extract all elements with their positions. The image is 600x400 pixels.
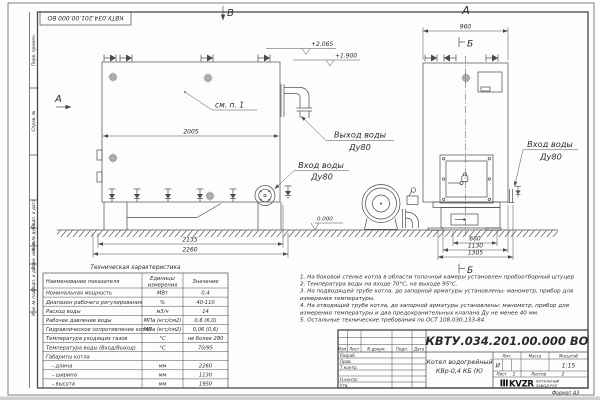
table-rows: Номинальная мощностьМВт0,4 Диапазон рабо…	[45, 291, 224, 388]
svg-text:14: 14	[202, 309, 209, 315]
valve-icon	[165, 189, 172, 202]
sheets-value: 2	[562, 372, 565, 378]
svg-text:40-110: 40-110	[196, 300, 215, 306]
top-stamp-number: КВТУ.034.201.00.000 ВО	[47, 14, 123, 21]
margin-label: Инв. № подл.	[31, 286, 37, 316]
kvzr-logo-icon	[501, 380, 503, 387]
svg-text:0,06 (0,6): 0,06 (0,6)	[193, 327, 219, 333]
sheet-label: Лист	[496, 372, 508, 377]
svg-text:Номинальная мощность: Номинальная мощность	[46, 291, 112, 297]
svg-text:°С: °С	[159, 345, 166, 351]
doc-number: КВТУ.034.201.00.000 ВО	[426, 334, 589, 348]
col-header: Единицы	[150, 276, 175, 282]
logo-text: KVZR	[509, 379, 534, 389]
svg-text:МВт: МВт	[157, 291, 169, 297]
svg-text:70/95: 70/95	[198, 345, 214, 351]
margin-strip: Перв. примен. Справ. № Подп. и дата Инв.…	[30, 12, 38, 388]
furnace-door	[440, 155, 493, 203]
draft-fan	[362, 185, 419, 230]
svg-text:Диапазон рабочего регулировани: Диапазон рабочего регулирования	[45, 300, 142, 306]
note-line: 4. На отводящей трубе котла, до запорной…	[300, 303, 570, 309]
valve-icon	[120, 55, 132, 62]
see-note-label: см. п. 1	[215, 101, 244, 110]
valve-icon	[258, 55, 270, 62]
kvzr-logo-icon	[503, 380, 505, 387]
dim-side-2: 1130	[468, 243, 483, 250]
svg-text:мм: мм	[159, 373, 167, 379]
view-a-arrow-label: А	[54, 94, 62, 105]
row-tkontr: Т.контр.	[340, 365, 358, 370]
valve-icon	[134, 189, 141, 202]
valve-icon	[425, 55, 437, 62]
valve-icon	[444, 55, 456, 62]
note-line: 5. Остальные технические требования по О…	[300, 318, 486, 324]
col-podp: Подп.	[396, 346, 408, 351]
boiler-assembly-drawing: Перв. примен. Справ. № Подп. и дата Инв.…	[0, 0, 600, 400]
inlet-label-side: Вход воды	[527, 139, 573, 149]
drawing-sheet: Перв. примен. Справ. № Подп. и дата Инв.…	[0, 0, 600, 400]
svg-text:Температура воды (Вход/Выход): Температура воды (Вход/Выход)	[46, 345, 136, 351]
svg-text:- высота: - высота	[52, 382, 75, 388]
sheet-value: 1	[513, 372, 516, 378]
svg-text:%: %	[160, 300, 165, 306]
svg-text:мм: мм	[159, 382, 167, 388]
fan-duct	[403, 188, 419, 228]
drain-valve-icon	[285, 186, 292, 199]
pipe-labels: Выход воды Ду80 Вход воды Ду80 Вход воды…	[275, 116, 579, 189]
inlet-dn-label-side: Ду80	[539, 152, 562, 162]
svg-text:МПа (кгс/см2): МПа (кгс/см2)	[144, 327, 182, 333]
note-line: измерения температуры и два предохраните…	[300, 310, 539, 316]
col-list: Лист	[348, 346, 360, 351]
scale-label: Масштаб	[559, 353, 579, 358]
valve-icon	[201, 55, 213, 62]
svg-text:Расход воды: Расход воды	[46, 309, 81, 315]
col-header: измерения	[148, 283, 178, 289]
svg-text:- ширина: - ширина	[52, 373, 77, 379]
col-izm: Изм.	[338, 346, 347, 351]
technical-notes: 1. На боковой стенке котла в области топ…	[300, 274, 575, 323]
kvzr-logo: KVZR КОТЕЛЬНЫЙ ЗАВОД РЭП	[501, 379, 560, 390]
dim-side-top: 960	[460, 24, 472, 31]
svg-text:2260: 2260	[199, 363, 213, 369]
tech-table: Техническая характеристика Наименование …	[43, 265, 228, 388]
svg-text:МПа (кгс/см2): МПа (кгс/см2)	[144, 318, 182, 324]
elevation-zero: 0.000	[317, 217, 333, 223]
valve-icon	[230, 189, 237, 202]
lit-value: И	[495, 363, 500, 370]
scan-shadow	[0, 397, 600, 400]
lit-label: Лит.	[501, 353, 511, 358]
col-header: Наименование показателя	[46, 279, 119, 285]
svg-text:м3/ч: м3/ч	[156, 309, 168, 315]
margin-label: Справ. №	[31, 110, 37, 131]
svg-text:Гидравлическое сопротивление к: Гидравлическое сопротивление котла	[46, 327, 152, 333]
svg-text:1950: 1950	[199, 382, 213, 388]
col-header: Значение	[192, 279, 218, 285]
sheets-label: Листов	[530, 372, 547, 377]
note-line: измерения температуры.	[300, 296, 375, 302]
section-b-top-label: Б	[467, 40, 473, 50]
scale-value: 1:15	[562, 363, 576, 370]
format-label: Формат А3	[552, 391, 579, 397]
note-line: 3. На подводящей трубе котла, до запорно…	[300, 289, 574, 295]
dim-front-body: 2005	[183, 129, 198, 136]
company-line2: ЗАВОД РЭП	[536, 384, 558, 388]
svg-text:0,4: 0,4	[201, 291, 209, 297]
door-latch-icon	[462, 176, 468, 182]
inlet-label-front: Вход воды	[298, 160, 344, 170]
tech-table-title: Техническая характеристика	[90, 265, 181, 271]
kvzr-logo-icon	[506, 380, 508, 387]
outlet-dn-label: Ду80	[348, 142, 371, 152]
row-prov: Пров.	[340, 359, 352, 364]
svg-text:мм: мм	[159, 363, 167, 369]
svg-text:1130: 1130	[199, 373, 213, 379]
title-block: КВТУ.034.201.00.000 ВО Изм. Лист N докум…	[338, 330, 589, 389]
svg-text:- длина: - длина	[52, 363, 72, 369]
outlet-label: Выход воды	[334, 130, 387, 140]
row-nkontr: Н.контр.	[340, 377, 358, 382]
elevation-top: +2.065	[311, 41, 333, 48]
margin-label: Перв. примен.	[31, 34, 37, 66]
foundation	[104, 202, 281, 230]
inlet-dn-label-front: Ду80	[310, 172, 333, 182]
mass-label: Масса	[529, 353, 542, 358]
svg-text:Температура уходящих газов: Температура уходящих газов	[46, 336, 127, 342]
product-name-line1: Котел водогрейный	[426, 359, 492, 366]
svg-text:0,6 (6,0): 0,6 (6,0)	[194, 318, 216, 324]
valve-icon	[486, 55, 498, 62]
dim-front-total: 2260	[182, 247, 197, 254]
note-line: 1. На боковой стенке котла в области топ…	[300, 274, 575, 280]
svg-text:Рабочее давление воды: Рабочее давление воды	[46, 318, 112, 324]
dim-front-base: 2135	[182, 237, 197, 244]
row-utv: Утв.	[340, 383, 349, 388]
valve-icon	[197, 189, 204, 202]
valve-icon	[109, 189, 116, 202]
note-line: 2. Температура воды на входе 70°С, на вы…	[300, 282, 458, 288]
svg-text:Габариты котла: Габариты котла	[46, 354, 90, 360]
dim-side-3: 1305	[468, 250, 483, 257]
col-data: Дата	[413, 346, 425, 351]
view-b-label: В	[227, 8, 234, 19]
elevation-mid: +1.900	[335, 53, 357, 60]
view-a-title: А	[461, 4, 470, 17]
outlet-pipe	[281, 84, 312, 118]
svg-text:°С: °С	[159, 336, 166, 342]
inlet-nozzle-side	[508, 186, 521, 202]
product-name-line2: КВр-0,4 КБ (К)	[436, 368, 483, 375]
ash-box	[428, 202, 501, 230]
ground-hatch	[57, 230, 558, 237]
front-view: В А см. п. 1 2005	[54, 6, 312, 258]
valve-icon	[104, 55, 116, 62]
col-doc: N докум.	[367, 346, 386, 351]
top-stamp: КВТУ.034.201.00.000 ВО	[40, 12, 131, 25]
row-razrab: Разраб.	[340, 353, 356, 358]
dim-side-1: 660	[469, 236, 481, 243]
svg-text:не более 280: не более 280	[188, 336, 225, 342]
